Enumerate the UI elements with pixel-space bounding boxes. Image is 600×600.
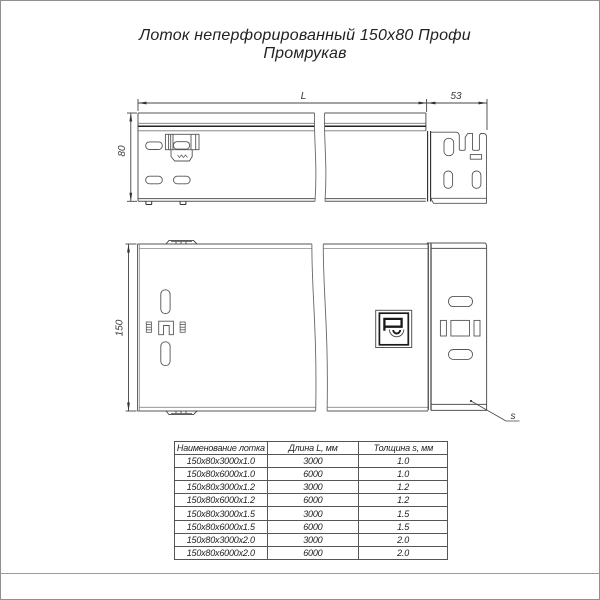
svg-text:53: 53 bbox=[450, 91, 462, 102]
svg-text:s: s bbox=[511, 411, 516, 422]
svg-text:80: 80 bbox=[117, 145, 128, 157]
svg-text:L: L bbox=[301, 90, 307, 102]
svg-text:150: 150 bbox=[115, 319, 126, 336]
